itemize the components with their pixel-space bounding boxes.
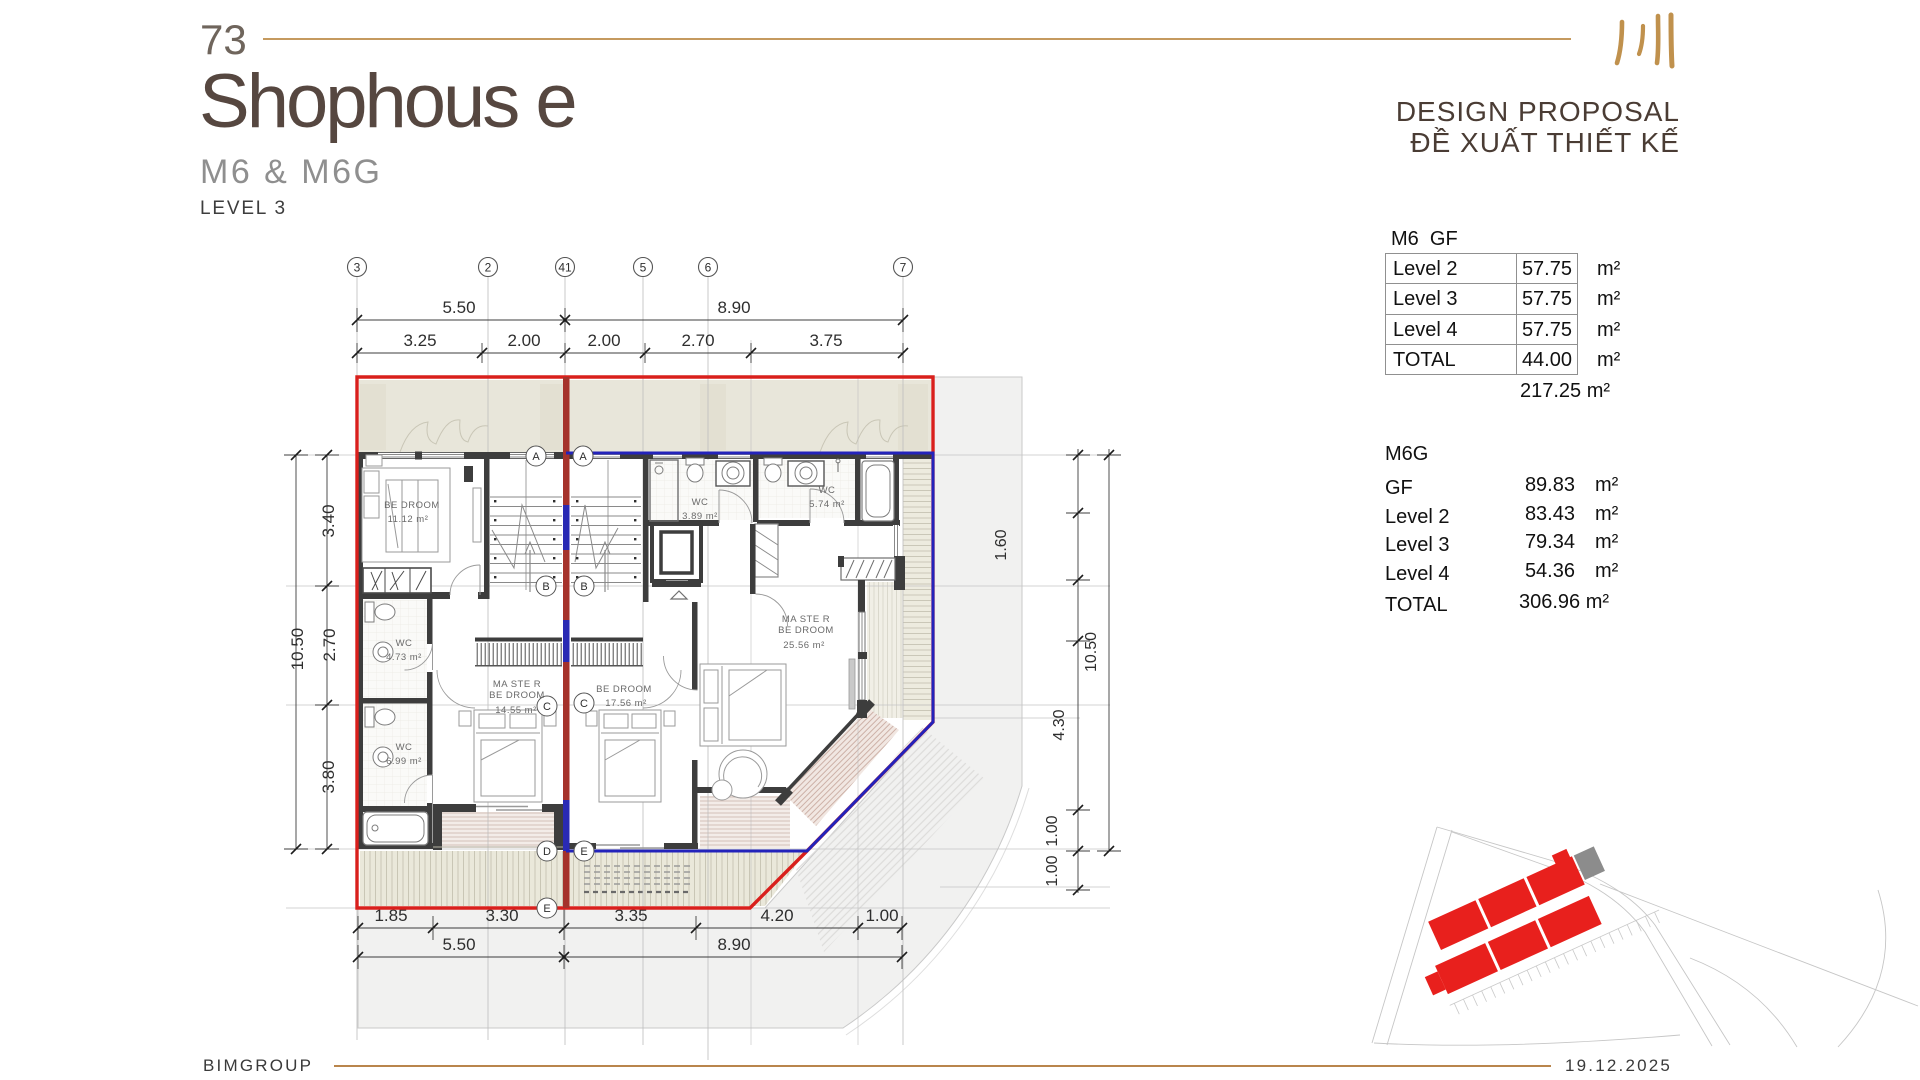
svg-text:1.60: 1.60 bbox=[993, 529, 1010, 560]
svg-text:10.50: 10.50 bbox=[1083, 632, 1100, 672]
svg-text:2.00: 2.00 bbox=[587, 331, 620, 350]
svg-text:5.50: 5.50 bbox=[442, 298, 475, 317]
svg-text:25.56 m²: 25.56 m² bbox=[783, 640, 825, 651]
svg-text:MA STE R: MA STE R bbox=[782, 614, 830, 625]
svg-text:3: 3 bbox=[354, 261, 361, 275]
svg-text:E: E bbox=[580, 846, 587, 858]
svg-text:WC: WC bbox=[819, 485, 836, 496]
svg-text:WC: WC bbox=[692, 497, 709, 508]
svg-text:WC: WC bbox=[396, 742, 413, 753]
svg-text:1.00: 1.00 bbox=[1044, 855, 1061, 886]
svg-text:MA STE R: MA STE R bbox=[493, 679, 541, 690]
svg-text:A: A bbox=[532, 451, 540, 463]
svg-text:6.99 m²: 6.99 m² bbox=[386, 756, 422, 767]
svg-text:14.55 m²: 14.55 m² bbox=[495, 705, 537, 716]
svg-text:BE DROOM: BE DROOM bbox=[778, 625, 834, 636]
svg-text:8.90: 8.90 bbox=[717, 298, 750, 317]
svg-text:A: A bbox=[579, 451, 587, 463]
svg-text:3.75: 3.75 bbox=[809, 331, 842, 350]
svg-text:BE DROOM: BE DROOM bbox=[384, 500, 440, 511]
svg-text:BE DROOM: BE DROOM bbox=[596, 684, 652, 695]
svg-text:11.12 m²: 11.12 m² bbox=[388, 514, 429, 525]
svg-text:2: 2 bbox=[485, 261, 492, 275]
svg-text:10.50: 10.50 bbox=[288, 628, 307, 671]
svg-text:B: B bbox=[580, 581, 587, 593]
svg-text:C: C bbox=[580, 698, 588, 710]
svg-text:B: B bbox=[542, 581, 549, 593]
svg-text:5: 5 bbox=[640, 261, 647, 275]
svg-text:2.70: 2.70 bbox=[681, 331, 714, 350]
svg-text:7: 7 bbox=[900, 261, 907, 275]
svg-text:3.80: 3.80 bbox=[319, 760, 338, 793]
svg-text:1.00: 1.00 bbox=[865, 906, 898, 925]
svg-text:WC: WC bbox=[396, 638, 413, 649]
svg-text:D: D bbox=[543, 846, 551, 858]
svg-text:8.90: 8.90 bbox=[717, 935, 750, 954]
svg-text:41: 41 bbox=[558, 261, 572, 275]
svg-text:3.25: 3.25 bbox=[403, 331, 436, 350]
svg-text:E: E bbox=[543, 903, 550, 915]
svg-text:2.00: 2.00 bbox=[507, 331, 540, 350]
svg-text:17.56 m²: 17.56 m² bbox=[605, 698, 647, 709]
svg-text:4.73 m²: 4.73 m² bbox=[386, 652, 422, 663]
svg-text:5.50: 5.50 bbox=[442, 935, 475, 954]
svg-text:4.30: 4.30 bbox=[1051, 709, 1068, 740]
svg-text:2.70: 2.70 bbox=[320, 628, 339, 661]
svg-text:5.74 m²: 5.74 m² bbox=[809, 499, 845, 510]
svg-text:3.89 m²: 3.89 m² bbox=[682, 511, 718, 522]
svg-text:3.40: 3.40 bbox=[319, 504, 338, 537]
svg-text:C: C bbox=[543, 701, 551, 713]
svg-text:1.00: 1.00 bbox=[1044, 815, 1061, 846]
svg-text:6: 6 bbox=[705, 261, 712, 275]
svg-text:BE DROOM: BE DROOM bbox=[489, 690, 545, 701]
svg-text:4.20: 4.20 bbox=[760, 906, 793, 925]
